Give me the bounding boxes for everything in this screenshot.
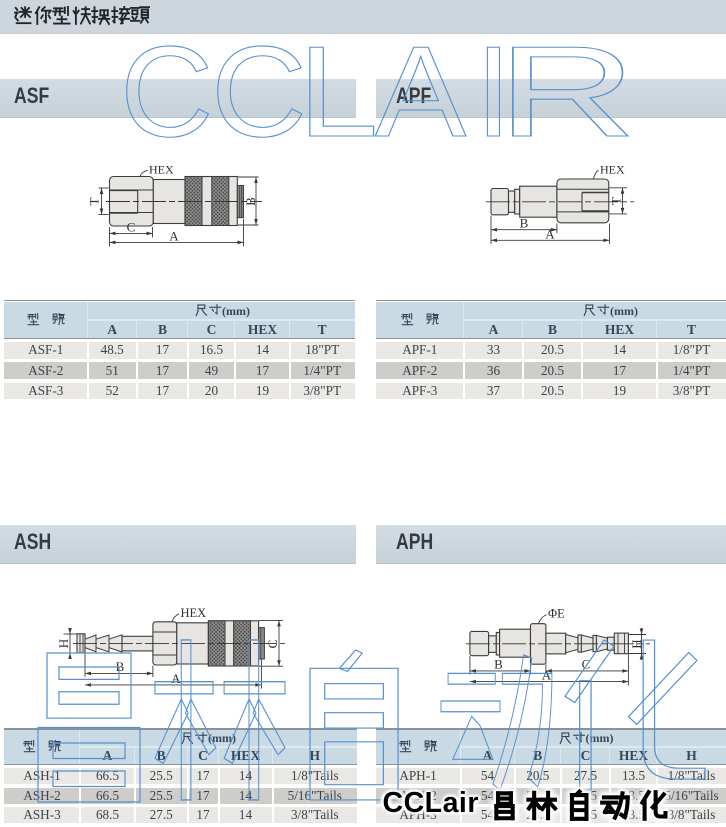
svg-text:B: B [494, 657, 503, 672]
svg-text:B: B [243, 197, 258, 206]
svg-text:B: B [520, 216, 529, 231]
svg-text:T: T [609, 197, 624, 205]
svg-text:H: H [56, 639, 71, 648]
svg-text:C: C [127, 220, 136, 235]
svg-text:C: C [265, 640, 280, 649]
svg-text:A: A [542, 668, 552, 683]
svg-text:ΦE: ΦE [548, 607, 565, 621]
svg-text:T: T [87, 197, 102, 205]
svg-text:HEX: HEX [181, 606, 207, 620]
svg-text:A: A [545, 226, 555, 241]
svg-text:A: A [169, 229, 179, 244]
svg-text:H: H [629, 639, 644, 648]
svg-text:A: A [171, 671, 181, 686]
